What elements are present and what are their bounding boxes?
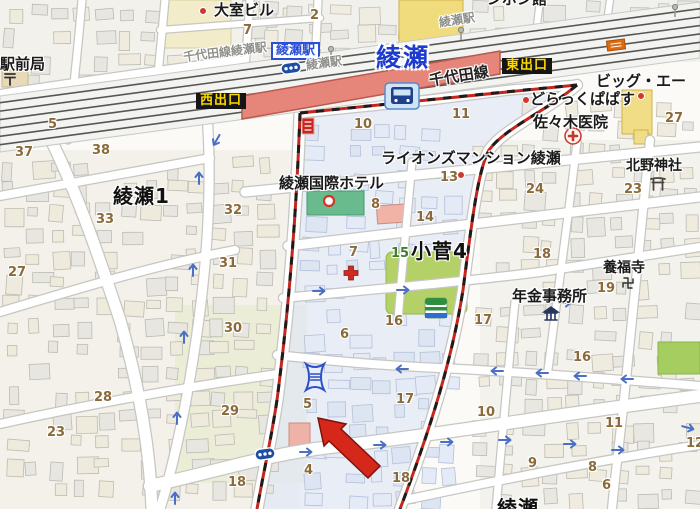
red-dot-icon [523,97,530,104]
convenience-store-icon [425,298,447,318]
red-dot-icon [458,172,465,179]
red-sign-badge [302,118,314,134]
map-canvas[interactable]: 綾瀬 千代田線 西出口 東出口 綾瀬駅 綾瀬1小菅4綾瀬大室ビル駅前局ンポン館ラ… [0,0,700,509]
orange-sign-badge [606,39,625,51]
big-a-building [622,90,652,134]
hospital-icon [565,128,581,144]
park-block-east [658,342,700,374]
hotel-ring-icon [324,196,334,206]
hotel-building [307,191,364,215]
map-base [0,0,700,509]
subway-train-icon [385,83,419,109]
pink-building [376,204,405,224]
red-dot-icon [200,8,207,15]
red-dot-icon [638,93,645,100]
post-office-building [2,70,28,87]
bathhouse-icon [306,364,324,390]
